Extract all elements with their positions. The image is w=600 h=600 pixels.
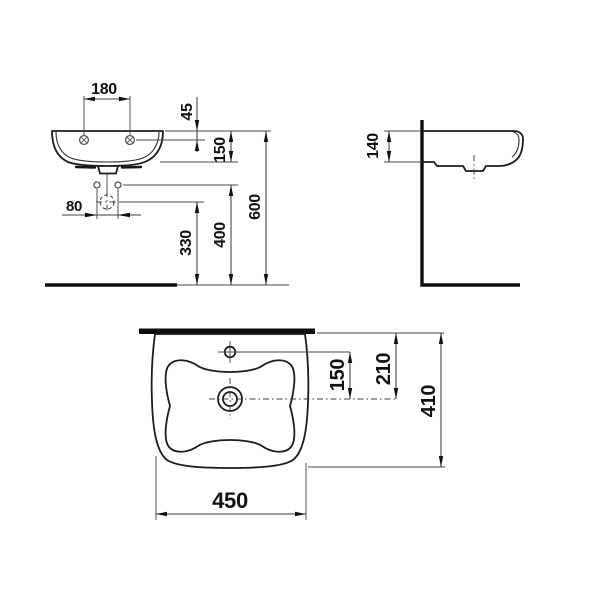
front-mount-hole-right [126,136,135,145]
front-mount-hole-left [80,136,89,145]
dim-label-410: 410 [418,385,440,418]
drawing-canvas: 180 45 150 600 400 [0,0,600,600]
front-fixing-hole-right [115,182,121,188]
side-view: 140 [365,120,523,285]
front-right-ledge [122,167,141,168]
dim-back-edge-to-drain: 210 [373,333,396,399]
dim-rim-to-underside: 140 [365,131,421,162]
dim-fixing-bolt-spacing: 80 [62,189,141,219]
washbasin-technical-drawing: 180 45 150 600 400 [0,0,600,600]
dim-rim-to-body-bottom: 150 [160,131,238,163]
front-basin-outline [52,131,163,166]
dim-label-140: 140 [365,133,382,159]
dim-label-210: 210 [373,353,395,386]
dim-tap-hole-to-drain: 150 [327,352,350,399]
dim-label-600: 600 [247,194,264,220]
side-basin-profile [423,131,523,171]
front-drain-boss [98,166,118,174]
side-wall-and-floor [422,120,520,285]
side-basin-inner-contour [512,132,519,157]
dim-label-150-top: 150 [327,359,349,392]
dim-floor-to-rim: 600 [247,131,266,285]
front-view: 180 45 150 600 400 [45,81,289,285]
dim-overall-width: 450 [156,456,306,520]
dim-label-330: 330 [178,230,195,256]
dim-label-450: 450 [212,488,248,513]
dim-rim-to-mount-holes: 45 [136,97,205,152]
front-basin-inner-contour [56,132,159,162]
dim-mount-hole-spacing: 180 [84,81,130,135]
top-view: 150 210 410 450 [139,329,445,521]
front-fixing-hole-left [94,182,100,188]
dim-label-400: 400 [212,222,229,248]
top-drain [209,378,396,419]
dim-label-45: 45 [179,103,196,121]
dim-floor-to-drain: 330 [119,202,204,285]
dim-label-80: 80 [66,198,82,215]
dim-label-180: 180 [91,81,117,98]
front-drain-symbol [96,191,118,213]
dim-label-150-front: 150 [212,137,229,163]
front-left-ledge [76,167,95,168]
